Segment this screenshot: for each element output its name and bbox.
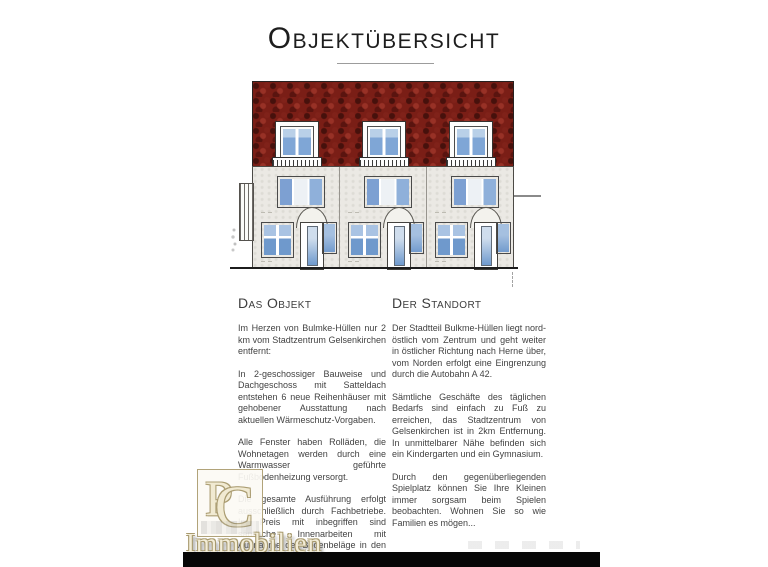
entrance-side-window [496,222,511,254]
dimension-mark [435,261,449,262]
entrance-side-window [322,222,337,254]
ground-floor-window [348,222,381,258]
dimension-mark [435,212,449,213]
upper-floor-window [364,176,412,208]
ground-floor-window [435,222,468,258]
paragraph: In 2-geschossiger Bauweise und Dachgesch… [238,369,386,427]
house-section-1 [253,167,339,268]
plot-boundary-tick [512,272,514,287]
dimension-mark [261,261,275,262]
level-mark-line [514,195,541,197]
dormer-center [362,121,406,160]
expose-page: Objektübersicht [0,0,768,567]
dimension-mark [348,212,362,213]
entrance-door [474,222,498,270]
ground-floor-window [261,222,294,258]
dormer-window [454,126,488,158]
section-der-standort: Der Standort Der Stadtteil Bulkme-Hüllen… [392,295,546,540]
section-heading: Der Standort [392,295,546,311]
building-elevation-drawing [252,81,514,268]
ground-line [230,267,518,269]
upper-floor-window [451,176,499,208]
entrance-door [300,222,324,270]
paragraph: Im Herzen von Bulmke-Hüllen nur 2 km vom… [238,323,386,358]
title-divider [337,63,434,64]
logo-monogram: P C [197,469,263,537]
dimension-mark [261,212,275,213]
dormer-right [449,121,493,160]
entrance-side-window [409,222,424,254]
upper-floor-window [277,176,325,208]
paragraph: Durch den gegenüberliegenden Spielplatz … [392,472,546,530]
paragraph: Der Stadtteil Bulkme-Hüllen liegt nord-ö… [392,323,546,381]
entrance-door [387,222,411,270]
side-trellis [239,183,254,241]
section-heading: Das Objekt [238,295,386,311]
house-section-3 [427,167,513,268]
dormer-left [275,121,319,160]
door-glazing [394,226,405,266]
dimension-mark [348,261,362,262]
page-title: Objektübersicht [0,22,768,56]
door-glazing [481,226,492,266]
handwritten-note [231,227,237,253]
print-artifact [468,541,580,549]
paragraph: Sämtliche Geschäfte des täglichen Bedarf… [392,392,546,461]
dormer-window [367,126,401,158]
house-section-2 [339,167,427,268]
door-glazing [307,226,318,266]
roof [252,81,514,167]
dormer-window [280,126,314,158]
facade [252,166,514,269]
footer-black-bar [183,552,600,567]
